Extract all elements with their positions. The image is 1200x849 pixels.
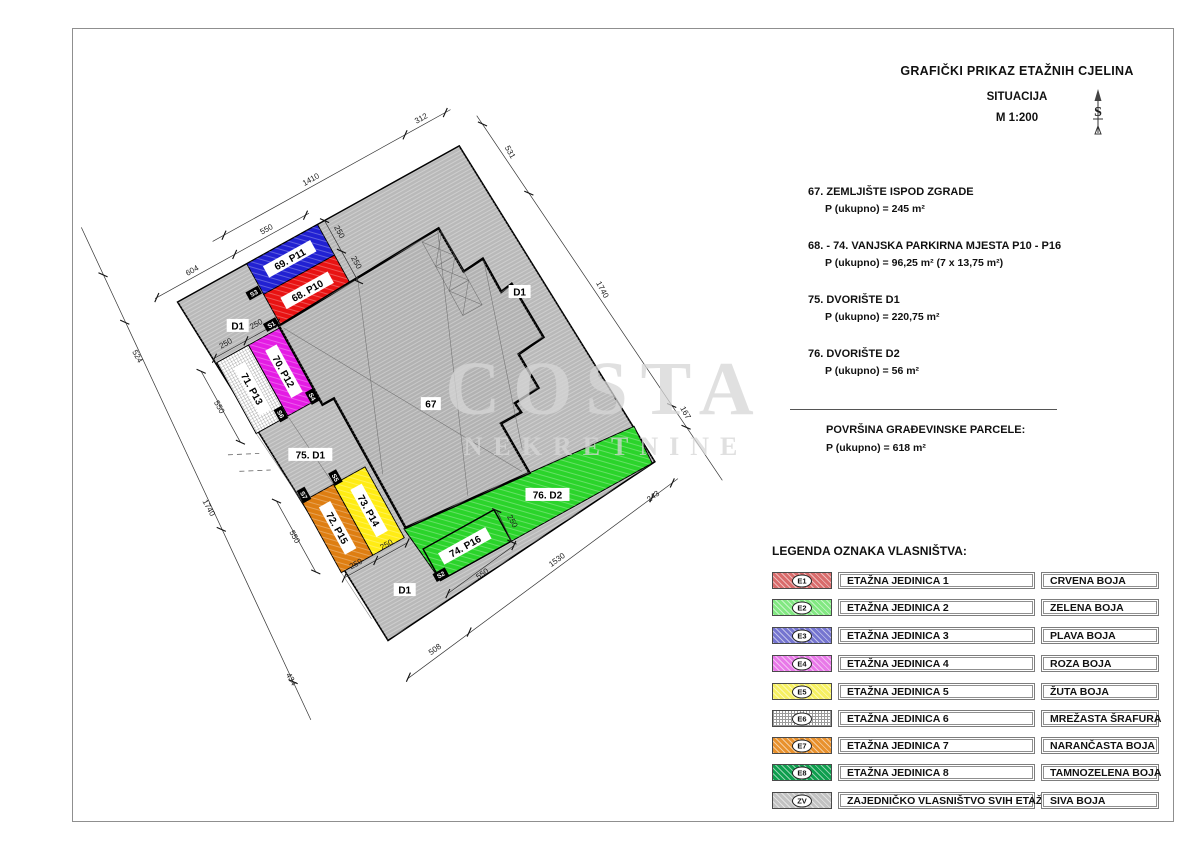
legend-row: E4 ETAŽNA JEDINICA 4 ROZA BOJA	[772, 655, 1172, 672]
area-item-75: 75. DVORIŠTE D1 P (ukupno) = 220,75 m²	[808, 294, 1138, 323]
legend-color-label: PLAVA BOJA	[1041, 627, 1159, 644]
area-item-76: 76. DVORIŠTE D2 P (ukupno) = 56 m²	[808, 348, 1138, 377]
legend-label: ETAŽNA JEDINICA 5	[838, 683, 1035, 700]
svg-text:1740: 1740	[200, 498, 217, 518]
legend-color-label: TAMNOZELENA BOJA	[1041, 764, 1159, 781]
legend-row: E7 ETAŽNA JEDINICA 7 NARANČASTA BOJA	[772, 737, 1172, 754]
area-item-title: 68. - 74. VANJSKA PARKIRNA MJESTA P10 - …	[808, 240, 1138, 252]
legend-code-e1: E1	[792, 574, 812, 587]
page-title: GRAFIČKI PRIKAZ ETAŽNIH CJELINA	[857, 64, 1177, 78]
legend-code-e4: E4	[792, 657, 812, 670]
legend-label: ETAŽNA JEDINICA 7	[838, 737, 1035, 754]
area-item-value: P (ukupno) = 56 m²	[825, 365, 1138, 377]
area-item-title: 75. DVORIŠTE D1	[808, 294, 1138, 306]
legend-row: E6 ETAŽNA JEDINICA 6 MREŽASTA ŠRAFURA	[772, 710, 1172, 727]
drawing-canvas: 524 1740 434 550 550 250 250 250 250 250…	[0, 0, 1200, 849]
parcel-total-value: P (ukupno) = 618 m²	[826, 442, 1146, 454]
terrain-dash	[239, 458, 270, 484]
svg-text:550: 550	[258, 222, 275, 237]
legend-swatch-e4: E4	[772, 655, 832, 672]
zone-label-d1-top: D1	[231, 321, 244, 332]
page-subtitle: SITUACIJA	[857, 91, 1177, 103]
legend-label: ZAJEDNIČKO VLASNIŠTVO SVIH ETAŽA	[838, 792, 1035, 809]
legend-swatch-e6: E6	[772, 710, 832, 727]
legend-row: E1 ETAŽNA JEDINICA 1 CRVENA BOJA	[772, 572, 1172, 589]
area-item-title: 76. DVORIŠTE D2	[808, 348, 1138, 360]
legend-code-e2: E2	[792, 601, 812, 614]
legend-color-label: NARANČASTA BOJA	[1041, 737, 1159, 754]
legend-color-label: ZELENA BOJA	[1041, 599, 1159, 616]
legend-swatch-e5: E5	[772, 683, 832, 700]
svg-text:604: 604	[184, 263, 201, 278]
area-item-value: P (ukupno) = 245 m²	[825, 203, 1138, 215]
legend-color-label: SIVA BOJA	[1041, 792, 1159, 809]
area-item-68-74: 68. - 74. VANJSKA PARKIRNA MJESTA P10 - …	[808, 240, 1138, 269]
divider-line	[790, 409, 1057, 410]
legend-label: ETAŽNA JEDINICA 8	[838, 764, 1035, 781]
legend-code-zv: ZV	[792, 794, 812, 807]
zone-label-76-d2: 76. D2	[533, 490, 563, 501]
legend-label: ETAŽNA JEDINICA 3	[838, 627, 1035, 644]
legend-color-label: ŽUTA BOJA	[1041, 683, 1159, 700]
legend-swatch-e3: E3	[772, 627, 832, 644]
area-item-value: P (ukupno) = 220,75 m²	[825, 311, 1138, 323]
legend-row: E2 ETAŽNA JEDINICA 2 ZELENA BOJA	[772, 599, 1172, 616]
legend-code-e5: E5	[792, 685, 812, 698]
zone-label-67: 67	[425, 400, 437, 411]
legend-swatch-e2: E2	[772, 599, 832, 616]
legend-color-label: MREŽASTA ŠRAFURA	[1041, 710, 1159, 727]
legend-row: ZV ZAJEDNIČKO VLASNIŠTVO SVIH ETAŽA SIVA…	[772, 792, 1172, 809]
area-item-67: 67. ZEMLJIŠTE ISPOD ZGRADE P (ukupno) = …	[808, 186, 1138, 215]
svg-text:312: 312	[413, 111, 430, 126]
legend-row: E5 ETAŽNA JEDINICA 5 ŽUTA BOJA	[772, 683, 1172, 700]
legend-swatch-zv: ZV	[772, 792, 832, 809]
legend-code-e7: E7	[792, 739, 812, 752]
title-block: GRAFIČKI PRIKAZ ETAŽNIH CJELINA SITUACIJ…	[857, 64, 1177, 124]
svg-text:1410: 1410	[301, 171, 321, 188]
legend-label: ETAŽNA JEDINICA 1	[838, 572, 1035, 589]
legend-code-e3: E3	[792, 629, 812, 642]
legend-row: E3 ETAŽNA JEDINICA 3 PLAVA BOJA	[772, 627, 1172, 644]
legend-label: ETAŽNA JEDINICA 2	[838, 599, 1035, 616]
area-item-value: P (ukupno) = 96,25 m² (7 x 13,75 m²)	[825, 257, 1138, 269]
terrain-dash	[228, 441, 259, 467]
legend-code-e6: E6	[792, 712, 812, 725]
legend-title: LEGENDA OZNAKA VLASNIŠTVA:	[772, 544, 967, 558]
legend-row: E8 ETAŽNA JEDINICA 8 TAMNOZELENA BOJA	[772, 764, 1172, 781]
svg-text:1530: 1530	[547, 551, 567, 569]
legend-swatch-e1: E1	[772, 572, 832, 589]
legend-label: ETAŽNA JEDINICA 4	[838, 655, 1035, 672]
legend-color-label: CRVENA BOJA	[1041, 572, 1159, 589]
svg-text:434: 434	[284, 671, 299, 688]
zone-label-d1-bottom: D1	[398, 586, 411, 597]
legend-label: ETAŽNA JEDINICA 6	[838, 710, 1035, 727]
svg-text:1740: 1740	[594, 280, 611, 300]
legend-color-label: ROZA BOJA	[1041, 655, 1159, 672]
svg-text:508: 508	[427, 641, 444, 656]
legend-swatch-e7: E7	[772, 737, 832, 754]
scale-label: M 1:200	[857, 112, 1177, 124]
legend-code-e8: E8	[792, 766, 812, 779]
legend-swatch-e8: E8	[772, 764, 832, 781]
svg-text:524: 524	[130, 348, 145, 365]
zone-label-75-d1: 75. D1	[296, 450, 326, 461]
svg-text:243: 243	[645, 489, 662, 504]
parcel-total-title: POVRŠINA GRAĐEVINSKE PARCELE:	[826, 424, 1146, 436]
zone-label-d1-right: D1	[513, 287, 526, 298]
parcel-total: POVRŠINA GRAĐEVINSKE PARCELE: P (ukupno)…	[826, 424, 1146, 454]
area-item-title: 67. ZEMLJIŠTE ISPOD ZGRADE	[808, 186, 1138, 198]
rotated-plan-group: 524 1740 434 550 550 250 250 250 250 250…	[46, 13, 738, 733]
